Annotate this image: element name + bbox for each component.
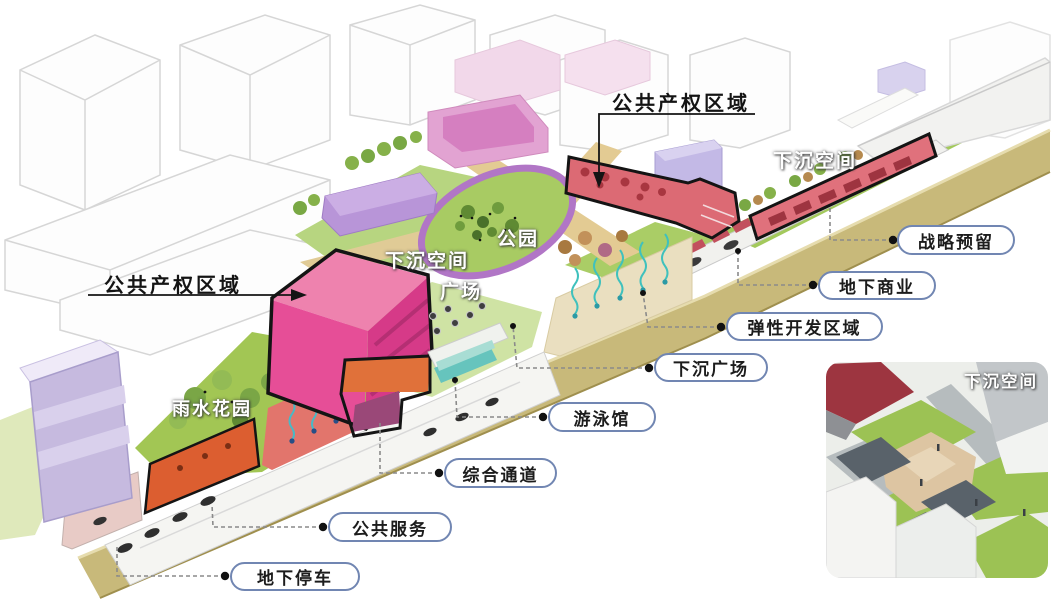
inset-panel	[826, 362, 1048, 578]
callout-public-service: 公共服务	[328, 512, 452, 542]
callout-flexible-development-zone: 弹性开发区域	[726, 312, 883, 341]
callout-underground-parking: 地下停车	[230, 562, 360, 591]
site-label-park: 公园	[497, 224, 539, 251]
callout-underground-commercial: 地下商业	[818, 271, 936, 300]
callout-swimming-hall: 游泳馆	[548, 402, 656, 432]
site-label-plaza: 广场	[440, 277, 482, 304]
callout-strategic-reserve: 战略预留	[897, 225, 1015, 255]
axonometric-scene	[0, 0, 1056, 609]
site-label-rain-garden: 雨水花园	[172, 395, 252, 421]
annotation-public-property-top: 公共产权区域	[612, 87, 750, 116]
site-label-sunken-space-center: 下沉空间	[385, 246, 469, 273]
annotation-public-property-left: 公共产权区域	[104, 269, 242, 298]
callout-sunken-plaza: 下沉广场	[654, 353, 768, 382]
diagram-canvas: 公共产权区域 公共产权区域 下沉空间 公园 下沉空间 广场 雨水花园 下沉空间 …	[0, 0, 1056, 609]
inset-label-sunken-space: 下沉空间	[964, 368, 1038, 392]
callout-integrated-corridor: 综合通道	[444, 458, 557, 488]
site-label-sunken-space-right: 下沉空间	[773, 146, 857, 173]
